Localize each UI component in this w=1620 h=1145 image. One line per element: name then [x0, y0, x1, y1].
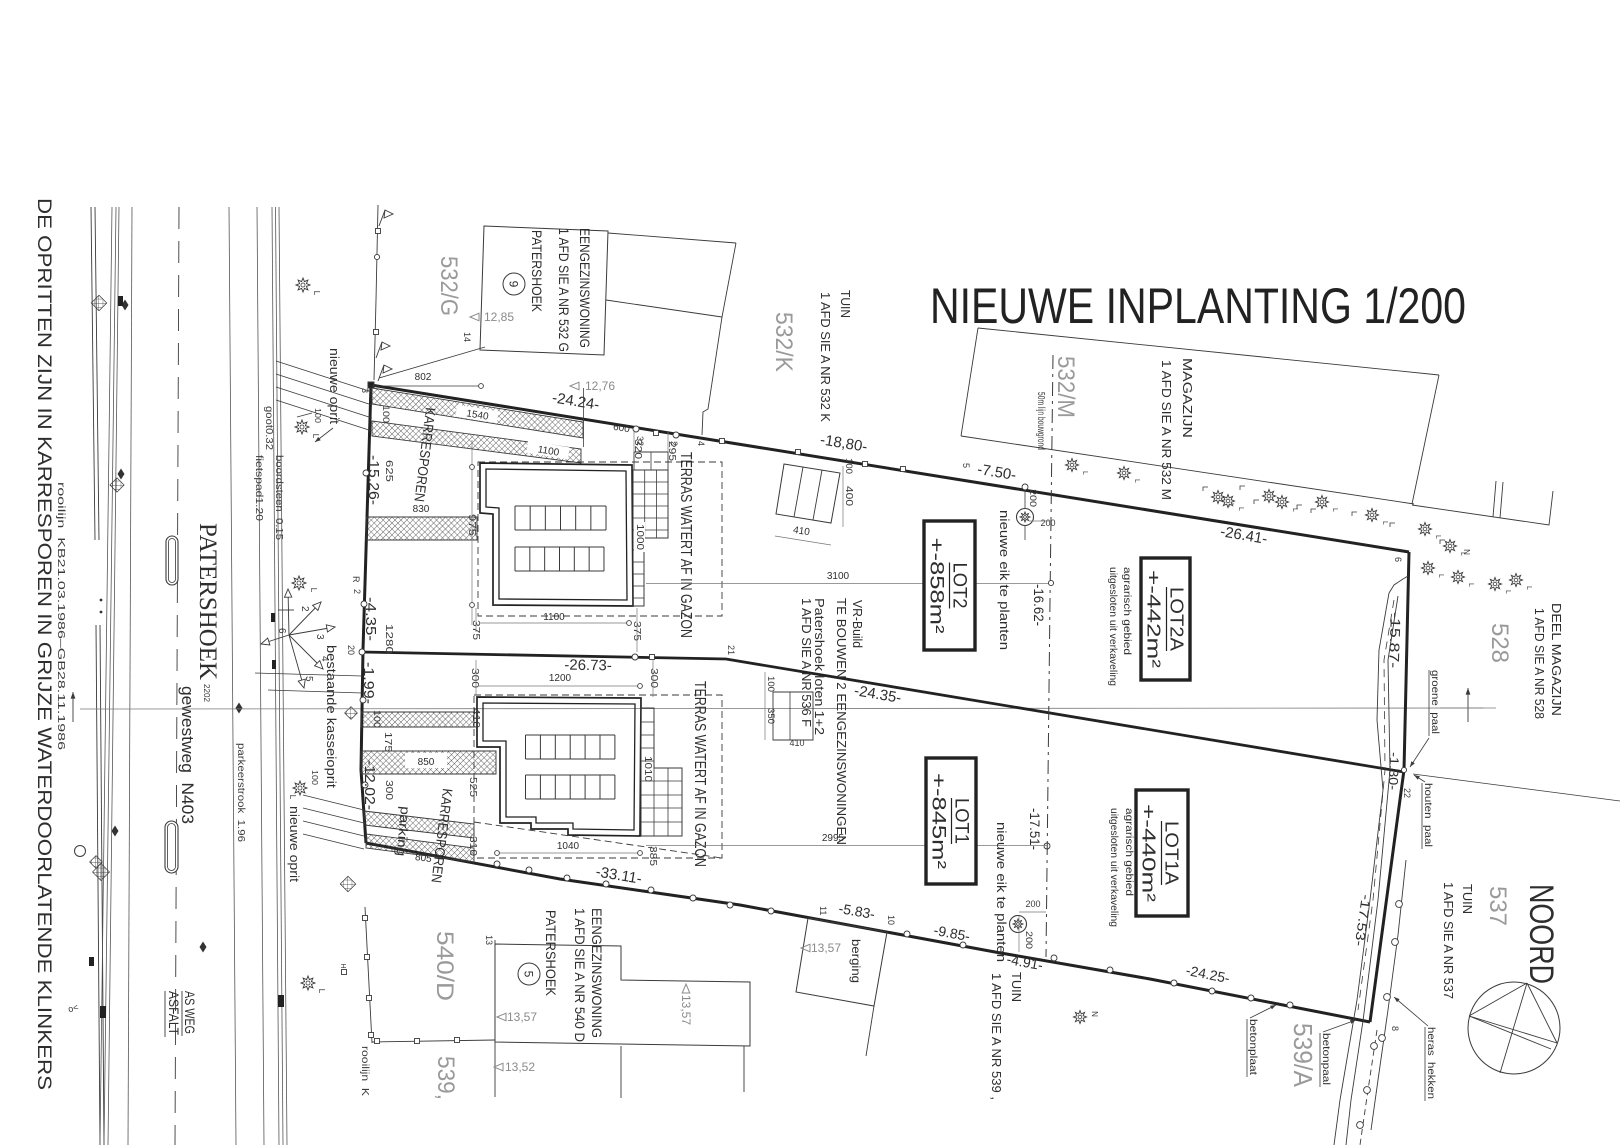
- svg-text:1010: 1010: [642, 756, 653, 783]
- svg-text:NOORD: NOORD: [1522, 884, 1560, 984]
- svg-text:rooilijn K: rooilijn K: [359, 1046, 370, 1096]
- svg-text:1 AFD SIE A NR 537: 1 AFD SIE A NR 537: [1441, 882, 1456, 999]
- svg-text:1 AFD SIE A NR 536 F: 1 AFD SIE A NR 536 F: [799, 598, 814, 727]
- svg-text:TUIN: TUIN: [1009, 972, 1024, 1002]
- svg-text:12,85: 12,85: [484, 310, 514, 324]
- svg-text:830: 830: [413, 504, 430, 515]
- svg-text:L: L: [1434, 535, 1441, 539]
- svg-text:+-440m²: +-440m²: [1139, 804, 1160, 902]
- svg-text:LOT1A: LOT1A: [1162, 821, 1183, 886]
- svg-text:400: 400: [843, 486, 854, 507]
- svg-text:nieuwe eik te planten: nieuwe eik te planten: [997, 510, 1012, 650]
- svg-text:L: L: [1525, 586, 1532, 590]
- svg-text:2: 2: [299, 606, 310, 612]
- svg-text:1 AFD SIE A NR 540 D: 1 AFD SIE A NR 540 D: [572, 908, 588, 1042]
- svg-text:MAGAZIJN: MAGAZIJN: [1180, 358, 1195, 438]
- svg-text:gewestweg N403: gewestweg N403: [178, 686, 197, 824]
- svg-text:9: 9: [507, 281, 521, 288]
- svg-text:100: 100: [381, 405, 391, 423]
- svg-text:uitgesloten uit verkaveling: uitgesloten uit verkaveling: [1108, 808, 1120, 927]
- svg-text:850: 850: [418, 757, 435, 768]
- svg-text:532/M: 532/M: [1052, 356, 1079, 418]
- svg-text:1200: 1200: [549, 673, 572, 684]
- svg-text:TUIN: TUIN: [838, 290, 853, 318]
- svg-text:-16.62-: -16.62-: [1031, 584, 1047, 626]
- svg-text:L: L: [1381, 521, 1388, 525]
- svg-text:13,52: 13,52: [505, 1060, 535, 1074]
- svg-text:410: 410: [470, 708, 481, 729]
- svg-text:8: 8: [1390, 1026, 1400, 1031]
- svg-text:EENGEZINSWONING: EENGEZINSWONING: [577, 228, 593, 348]
- svg-text:200: 200: [1040, 518, 1055, 528]
- svg-text:13: 13: [484, 935, 494, 945]
- svg-text:385: 385: [647, 846, 658, 867]
- svg-text:TERRAS WATERT AF IN GAZON: TERRAS WATERT AF IN GAZON: [677, 452, 694, 638]
- svg-text:100: 100: [766, 676, 776, 692]
- svg-text:L: L: [1081, 471, 1088, 475]
- svg-text:L: L: [1437, 574, 1444, 578]
- svg-text:H: H: [339, 963, 346, 968]
- svg-text:LOT2: LOT2: [949, 563, 971, 609]
- svg-text:1040: 1040: [557, 841, 580, 852]
- svg-text:13,57: 13,57: [811, 941, 841, 955]
- svg-text:22: 22: [1402, 788, 1412, 798]
- svg-text:TE BOUWEN 2 EENGEZINSWONINGEN: TE BOUWEN 2 EENGEZINSWONINGEN: [834, 598, 849, 845]
- svg-text:+-442m²: +-442m²: [1144, 570, 1165, 668]
- svg-text:540/D: 540/D: [431, 931, 458, 1001]
- svg-text:975: 975: [466, 514, 477, 537]
- svg-text:L: L: [1331, 508, 1338, 512]
- svg-text:805: 805: [414, 852, 432, 865]
- svg-text:5: 5: [961, 463, 971, 468]
- svg-text:DE OPRITTEN ZIJN IN KARRESPORE: DE OPRITTEN ZIJN IN KARRESPOREN IN GRIJZ…: [33, 198, 54, 1090]
- svg-text:-1.30-: -1.30-: [1386, 752, 1402, 791]
- svg-text:heras hekken: heras hekken: [1425, 1027, 1436, 1099]
- svg-text:13,57: 13,57: [507, 1010, 537, 1024]
- svg-text:300: 300: [648, 668, 659, 689]
- svg-text:100: 100: [844, 458, 854, 474]
- svg-text:goot0.32: goot0.32: [263, 406, 275, 450]
- svg-text:-17.51-: -17.51-: [1027, 808, 1043, 850]
- svg-text:L: L: [312, 291, 321, 296]
- svg-text:200: 200: [1024, 931, 1034, 949]
- svg-text:50m lijn bouwgrond: 50m lijn bouwgrond: [1035, 392, 1046, 450]
- svg-text:1280: 1280: [383, 624, 394, 655]
- svg-text:5: 5: [522, 971, 536, 978]
- svg-text:L: L: [311, 434, 320, 439]
- svg-text:1 AFD SIE A NR 532 M: 1 AFD SIE A NR 532 M: [1159, 360, 1174, 500]
- svg-text:betonpaal: betonpaal: [1320, 1033, 1331, 1085]
- svg-text:N: N: [1090, 1011, 1099, 1017]
- svg-text:L: L: [309, 588, 318, 593]
- svg-text:L: L: [1467, 583, 1474, 587]
- svg-text:5: 5: [303, 676, 314, 682]
- svg-text:agrarisch gebied: agrarisch gebied: [1123, 808, 1135, 896]
- svg-text:-1.99-: -1.99-: [360, 662, 377, 704]
- svg-text:3: 3: [314, 634, 325, 640]
- svg-text:VR-Build: VR-Build: [850, 600, 865, 648]
- svg-text:NIEUWE INPLANTING 1/200: NIEUWE INPLANTING 1/200: [930, 278, 1466, 334]
- svg-text:13,57: 13,57: [679, 995, 693, 1025]
- svg-text:300: 300: [383, 780, 394, 801]
- svg-text:532/G: 532/G: [435, 256, 462, 316]
- svg-text:100: 100: [313, 408, 322, 424]
- svg-text:2202: 2202: [202, 684, 211, 703]
- svg-text:100: 100: [310, 770, 319, 786]
- svg-text:AS WEG: AS WEG: [182, 991, 198, 1034]
- svg-text:300: 300: [469, 668, 480, 689]
- svg-text:539,: 539,: [432, 1056, 459, 1100]
- svg-text:200: 200: [1025, 899, 1040, 909]
- svg-text:betonplaat: betonplaat: [1247, 1019, 1258, 1075]
- svg-text:525: 525: [467, 777, 478, 798]
- svg-text:uitgesloten uit verkaveling: uitgesloten uit verkaveling: [1107, 567, 1119, 686]
- svg-text:20: 20: [346, 645, 356, 655]
- svg-text:-15.26-: -15.26-: [365, 455, 382, 505]
- svg-text:DEEL MAGAZIJN: DEEL MAGAZIJN: [1549, 603, 1564, 716]
- svg-text:1 AFD SIE A NR 539 ,: 1 AFD SIE A NR 539 ,: [989, 973, 1004, 1100]
- svg-text:1100: 1100: [543, 612, 565, 623]
- svg-text:ASFALT: ASFALT: [166, 991, 182, 1035]
- svg-text:boordsteen 0.15: boordsteen 0.15: [273, 455, 285, 540]
- svg-text:6: 6: [1393, 557, 1403, 562]
- svg-text:L: L: [1504, 590, 1511, 594]
- svg-text:-4.35-: -4.35-: [362, 597, 379, 641]
- svg-text:375: 375: [470, 620, 481, 641]
- svg-text:nieuwe oprit: nieuwe oprit: [287, 806, 302, 882]
- svg-text:L: L: [1133, 479, 1140, 483]
- svg-text:TUIN: TUIN: [1460, 884, 1475, 914]
- svg-text:N: N: [1462, 549, 1471, 555]
- svg-text:12,76: 12,76: [585, 379, 615, 393]
- svg-text:PATERSHOEK: PATERSHOEK: [543, 910, 559, 997]
- svg-text:11: 11: [818, 906, 828, 915]
- svg-text:532/K: 532/K: [770, 312, 797, 372]
- svg-text:L: L: [1237, 507, 1244, 511]
- svg-text:537: 537: [1484, 886, 1511, 926]
- svg-text:802: 802: [415, 372, 432, 383]
- svg-text:310: 310: [467, 836, 478, 857]
- svg-text:LOT2A: LOT2A: [1167, 587, 1188, 652]
- svg-text:528: 528: [1486, 623, 1513, 663]
- svg-text:175: 175: [382, 732, 393, 753]
- svg-text:houten paal: houten paal: [1422, 783, 1433, 847]
- svg-text:PATERSHOEK: PATERSHOEK: [194, 523, 221, 680]
- svg-text:bestaande kasseioprit: bestaande kasseioprit: [324, 645, 339, 788]
- svg-text:4: 4: [696, 441, 706, 446]
- svg-text:-15.87-: -15.87-: [1386, 612, 1404, 669]
- svg-text:1000: 1000: [634, 524, 645, 551]
- svg-text:agrarisch gebied: agrarisch gebied: [1121, 567, 1133, 655]
- svg-text:L: L: [317, 989, 326, 994]
- svg-text:rooilijn KB21.03.1986–GB28.11: rooilijn KB21.03.1986–GB28.11.1986: [55, 482, 66, 751]
- svg-text:6: 6: [276, 628, 287, 634]
- svg-text:350: 350: [766, 708, 776, 724]
- svg-text:10: 10: [886, 915, 896, 925]
- svg-text:2: 2: [352, 589, 362, 594]
- svg-text:nieuwe oprit: nieuwe oprit: [327, 348, 342, 424]
- svg-text:14: 14: [462, 332, 472, 342]
- svg-text:-26.73-: -26.73-: [564, 657, 612, 675]
- svg-text:539/A: 539/A: [1288, 1023, 1318, 1088]
- svg-text:+-858m²: +-858m²: [926, 538, 948, 635]
- svg-text:fietspad1.20: fietspad1.20: [253, 455, 265, 521]
- svg-text:groene paal: groene paal: [1429, 670, 1440, 734]
- svg-text:+-845m²: +-845m²: [928, 773, 950, 870]
- svg-text:375: 375: [631, 621, 642, 642]
- svg-text:parkeerstrook 1.96: parkeerstrook 1.96: [235, 743, 247, 842]
- svg-text:21: 21: [726, 645, 736, 655]
- svg-text:nieuwe eik te planten: nieuwe eik te planten: [994, 822, 1009, 962]
- svg-text:EENGEZINSWONING: EENGEZINSWONING: [589, 908, 605, 1038]
- svg-text:berging: berging: [849, 939, 863, 983]
- svg-text:200: 200: [1028, 489, 1038, 507]
- svg-text:1 AFD SIE A NR 528: 1 AFD SIE A NR 528: [1532, 608, 1547, 719]
- svg-text:1 AFD SIE A NR 532 K: 1 AFD SIE A NR 532 K: [818, 292, 833, 422]
- svg-text:PATERSHOEK: PATERSHOEK: [529, 230, 545, 313]
- svg-text:625: 625: [383, 460, 394, 483]
- svg-text:3100: 3100: [827, 571, 850, 582]
- svg-text:R: R: [351, 576, 361, 583]
- svg-text:410: 410: [789, 738, 804, 748]
- svg-text:100: 100: [372, 710, 382, 728]
- svg-text:L: L: [288, 795, 297, 800]
- svg-text:LOT1: LOT1: [951, 798, 973, 844]
- svg-text:TERRAS WATERT AF IN GAZON: TERRAS WATERT AF IN GAZON: [691, 681, 708, 867]
- svg-text:1 AFD SIE A NR 532 G: 1 AFD SIE A NR 532 G: [556, 228, 572, 352]
